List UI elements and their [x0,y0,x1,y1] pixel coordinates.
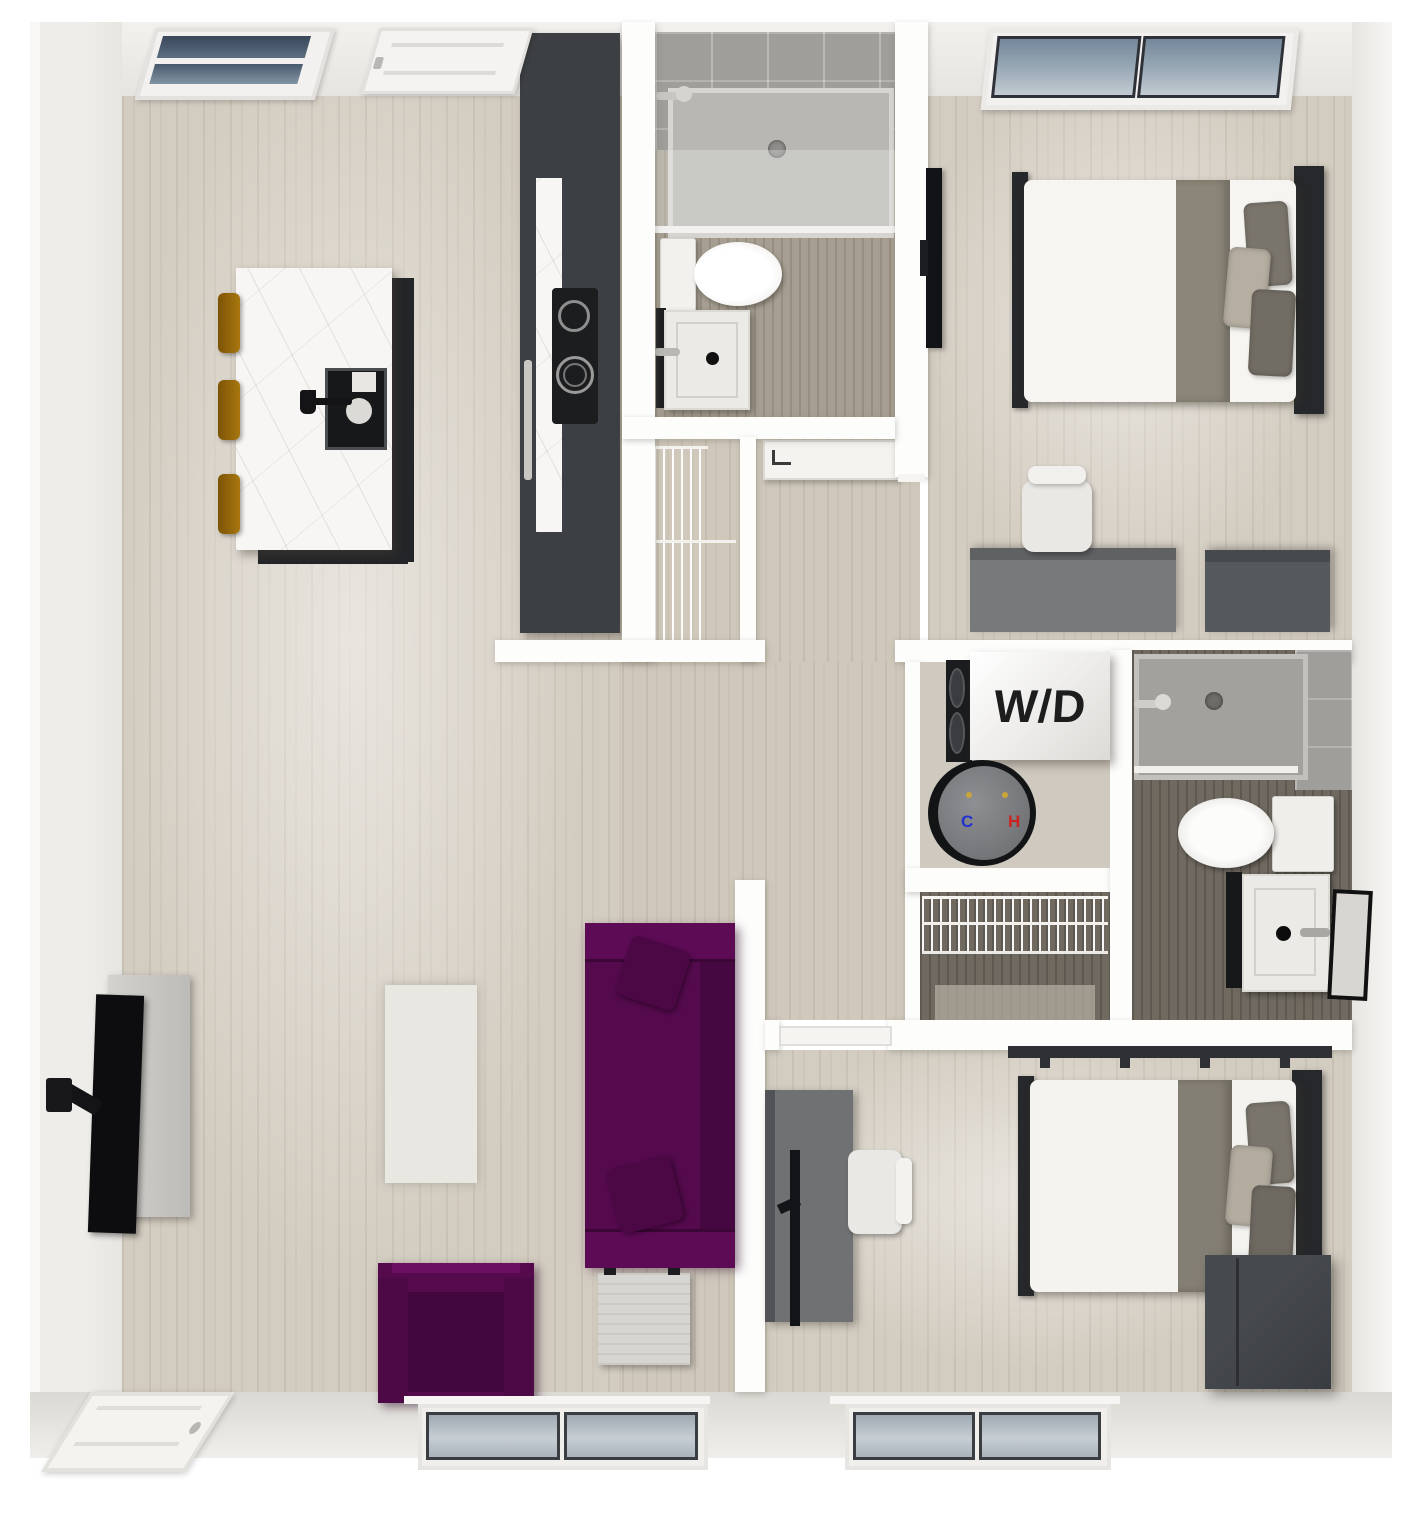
bathroom2-shower-drain [1205,692,1223,710]
bar-stool [218,293,240,353]
armchair-seat [408,1292,504,1392]
linen-closet-wire-shelf [922,896,1108,954]
closet-shelf-bracket [1280,1058,1290,1068]
bedroom1-window [981,28,1300,110]
island-sink-marble-patch [352,372,376,392]
bedroom1-dresser [1205,550,1330,632]
living-window-glass [426,1412,560,1460]
closet-shelf-bracket [1120,1058,1130,1068]
left-exterior-wall [30,22,122,1458]
entry-cabinet-inner-line [383,71,496,75]
armchair-arm [504,1278,534,1403]
bathroom2-toilet-bowl [1178,798,1274,868]
island-faucet-icon [310,398,352,405]
sofa-armrest [585,1229,735,1268]
bedroom2-dresser [1205,1255,1331,1389]
entry-door-panel-line [96,1406,202,1410]
wall-hall-wd [905,662,920,1040]
entry-cabinet-inner-line [391,43,504,47]
washer-drum-oval [949,712,965,754]
armchair-back-highlight [392,1263,520,1273]
bedroom2-closet-shelf [1008,1046,1332,1058]
closet-shelf-bracket [1200,1058,1210,1068]
linen-closet-floor-light [935,985,1095,1020]
side-table [598,1273,690,1365]
bedroom1-bed-headboard [1294,166,1324,414]
bedroom1-door-header [898,474,925,482]
water-heater-hot-label: H [1008,812,1020,832]
wall-bedroom2-top-left [765,1020,779,1050]
wall-bath1-bottom [622,417,895,439]
bathroom2-mirror [1327,889,1373,1001]
bathroom2-toilet-tank [1272,796,1334,872]
bedroom2-office-chair [848,1150,902,1234]
tv-mount-plate-icon [46,1078,72,1112]
bedroom2-window-glass [979,1412,1101,1460]
armchair-arm [378,1278,408,1403]
wall-kitchen-bath1 [622,22,655,662]
living-skylight-glass [149,64,303,84]
living-tv [88,994,144,1234]
bathroom2-shower-pan [1134,654,1308,780]
bedroom1-bed-blanket [1176,180,1230,402]
wall-mid-left [495,640,765,662]
side-table-foot [668,1268,680,1275]
entry-door-panel-line [73,1442,179,1446]
wall-living-bedroom2 [735,880,765,1392]
floorplan-rendering: W/D C H [0,0,1408,1517]
bedroom1-window-glass [991,36,1142,98]
cooktop-burner-icon [558,300,590,332]
washer-dryer-unit: W/D [970,652,1110,760]
island-faucet-icon-head [300,390,316,414]
bathroom1-toilet-bowl [694,242,782,306]
linen-closet-shelf-rail [922,922,1108,925]
side-table-foot [604,1268,616,1275]
bathroom2-vanity-side [1226,872,1242,988]
bedroom1-tv-mount-icon [920,240,928,276]
bedroom2-window [845,1404,1111,1470]
door-knob-icon [187,1422,203,1434]
wall-wd-closet-divider [905,868,1110,892]
bar-stool [218,380,240,440]
bathroom1-shower-head-icon-disc [676,86,692,102]
bedroom1-tv [926,168,942,348]
living-window-sill [404,1396,710,1404]
bathroom2-sink-drain [1276,926,1291,941]
bottom-exterior-wall [30,1392,1392,1458]
cabinet-knob-icon [373,57,384,69]
bedroom1-office-chair [1022,480,1092,552]
living-skylight-window [135,28,336,100]
bedroom2-window-sill [830,1396,1120,1404]
bar-stool [218,474,240,534]
closet-shelf-bracket [1040,1058,1050,1068]
bathroom1-sink-drain [706,352,719,365]
bathroom2-faucet-icon [1300,928,1330,937]
bathroom1-faucet-icon [654,348,680,356]
water-heater-cold-label: C [961,812,973,832]
bedroom2-office-chair-back [896,1158,912,1224]
living-skylight-glass [157,36,311,58]
bathroom1-door-frame-mark [772,450,791,465]
living-window-glass [564,1412,698,1460]
entry-cabinet-panel [361,28,534,94]
bedroom1-window-glass [1137,36,1286,98]
bathroom1-shower-glass [655,150,895,233]
sofa-backrest [700,923,735,1265]
bedroom1-desk [970,548,1176,632]
bedroom2-dresser-divider [1236,1258,1239,1386]
bathroom2-shower-glass-rail [1134,766,1298,773]
area-rug [385,985,477,1183]
wall-closet-bath2 [1110,650,1132,1040]
washer-drum-oval [949,668,965,708]
bedroom2-tv-mount-icon [790,1150,800,1326]
right-exterior-wall [1352,22,1392,1458]
bathroom2-shower-head-icon-disc [1155,694,1171,710]
living-window [418,1404,708,1470]
kitchen-oven-handle [524,360,532,480]
wall-pantry-right [740,437,756,662]
cooktop-burner-icon [556,356,594,394]
hall-lower-floor [765,662,920,1020]
water-heater-fitting [966,792,972,798]
bedroom2-door-panel [779,1026,892,1046]
bedroom2-window-glass [853,1412,975,1460]
bedroom1-office-chair-back [1028,466,1086,484]
bedroom1-pillow [1248,289,1296,377]
water-heater-fitting [1002,792,1008,798]
washer-dryer-label: W/D [992,679,1088,733]
bathroom1-toilet-tank [660,238,696,312]
